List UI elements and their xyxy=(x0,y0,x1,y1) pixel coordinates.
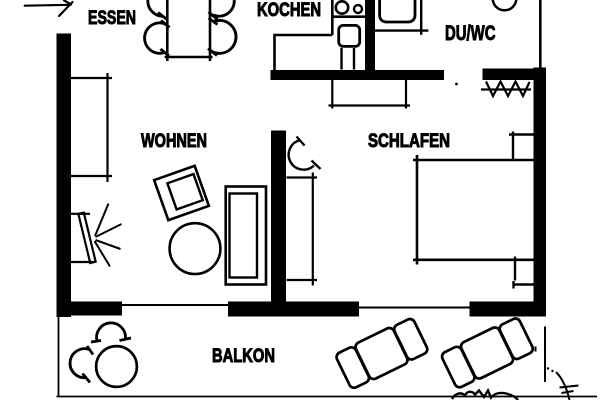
svg-text:ESSEN: ESSEN xyxy=(88,8,136,29)
svg-text:WOHNEN: WOHNEN xyxy=(141,131,207,152)
svg-text:BALKON: BALKON xyxy=(212,345,275,367)
svg-text:SCHLAFEN: SCHLAFEN xyxy=(368,131,450,152)
svg-text:KOCHEN: KOCHEN xyxy=(257,0,321,21)
svg-text:DU/WC: DU/WC xyxy=(445,21,496,45)
